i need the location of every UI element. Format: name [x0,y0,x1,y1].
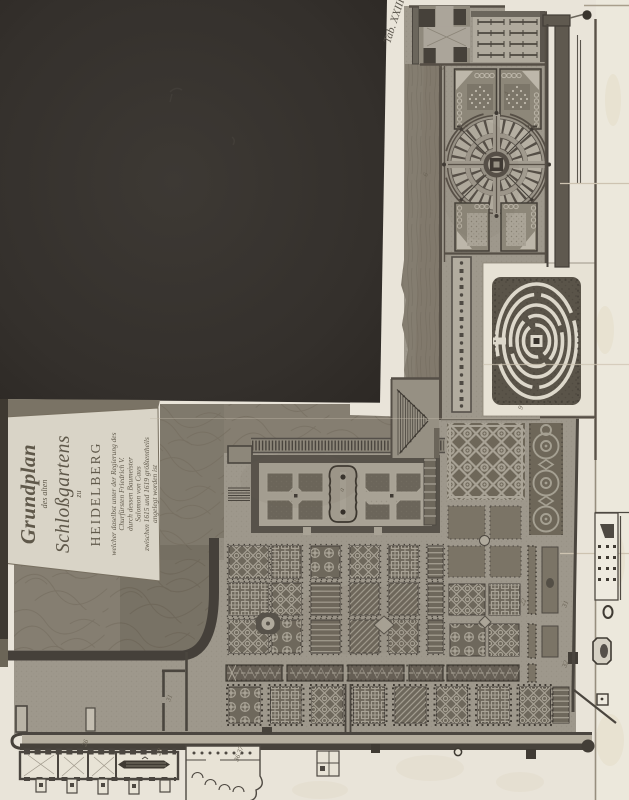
svg-text:HEIDELBERG: HEIDELBERG [88,442,103,547]
svg-text:zu: zu [74,490,83,498]
svg-text:des alten: des alten [40,480,49,509]
svg-text:Schloßgartens: Schloßgartens [53,435,74,553]
svg-text:angelegt worden ist: angelegt worden ist [150,464,159,523]
svg-text:Grundplan: Grundplan [16,444,40,544]
